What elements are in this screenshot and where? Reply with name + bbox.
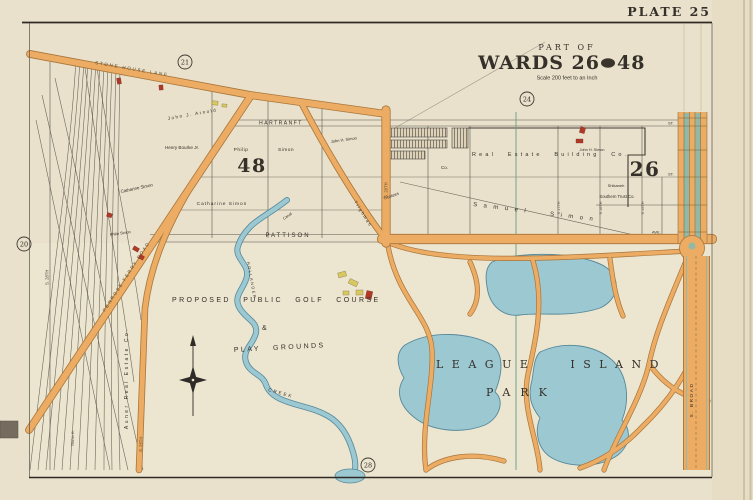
plate-ref-top-left: 21 <box>181 59 189 67</box>
s26th-label: S. 26TH <box>138 436 144 452</box>
median-strip <box>684 113 689 242</box>
plate-label: PLATE 25 <box>627 4 711 19</box>
simon-label: Simon <box>278 147 294 153</box>
hartranft-label: HARTRANFT <box>259 121 303 127</box>
proposed-golf-course-label: PROPOSED PUBLIC GOLF COURSE <box>172 297 381 304</box>
park-label: PARK <box>486 386 557 399</box>
s28th-label: S. 28TH <box>45 270 50 285</box>
west-lake <box>398 334 501 430</box>
upper-lake <box>486 254 616 315</box>
plate-ref-south: 28 <box>364 462 372 470</box>
median-strip <box>696 113 701 242</box>
map-sheet: 21 24 20 28 PLATE 25 PART OF WARDS 26 AN… <box>0 0 753 500</box>
st-label: ST. <box>668 172 674 177</box>
ward-48-number: 48 <box>237 155 266 177</box>
pattison-label: PATTISON <box>265 233 310 239</box>
s15th-label: S 15TH <box>641 201 645 214</box>
right-margin <box>712 0 753 500</box>
league-island-label: LEAGUE ISLAND <box>436 358 667 371</box>
creek-pond <box>335 469 365 483</box>
atlas-plate-page: 21 24 20 28 PLATE 25 PART OF WARDS 26 AN… <box>0 0 753 500</box>
maher-label: Maher R. <box>71 430 76 446</box>
edge-tab <box>0 421 18 438</box>
title-wards-left: WARDS 26 <box>477 52 600 74</box>
st-label: ST. <box>668 121 674 126</box>
ward-26-number: 26 <box>630 157 661 181</box>
plate-ref-west: 20 <box>20 241 28 249</box>
real-estate-co-label: Real Estate Building Co. <box>472 152 629 158</box>
ave-label: AVE. <box>652 230 661 235</box>
plate-ref-top-center: 24 <box>523 96 531 104</box>
scale-note: Scale 200 feet to an Inch <box>537 76 598 82</box>
ampersand-label: & <box>262 325 267 332</box>
auner-real-estate-label: Auner Real Estate Co. <box>124 327 130 429</box>
philip-label: Philip <box>234 147 249 153</box>
s-broad-label: S. BROAD <box>689 383 695 418</box>
shikaneh-label: Shikaneh <box>608 183 625 188</box>
title-and: AND <box>604 62 612 66</box>
henry-bourke-label: Henry Bourke Jr. <box>165 145 199 150</box>
title-wards-right: 48 <box>617 52 645 74</box>
title-part-of: PART OF <box>538 43 595 52</box>
s16th-label: S 16TH <box>599 201 603 214</box>
southern-trust-label: Southern Trust Co. <box>599 194 634 199</box>
co-label: Co. <box>441 165 448 170</box>
catharine-simon-label: Catharine Simon <box>197 201 248 207</box>
